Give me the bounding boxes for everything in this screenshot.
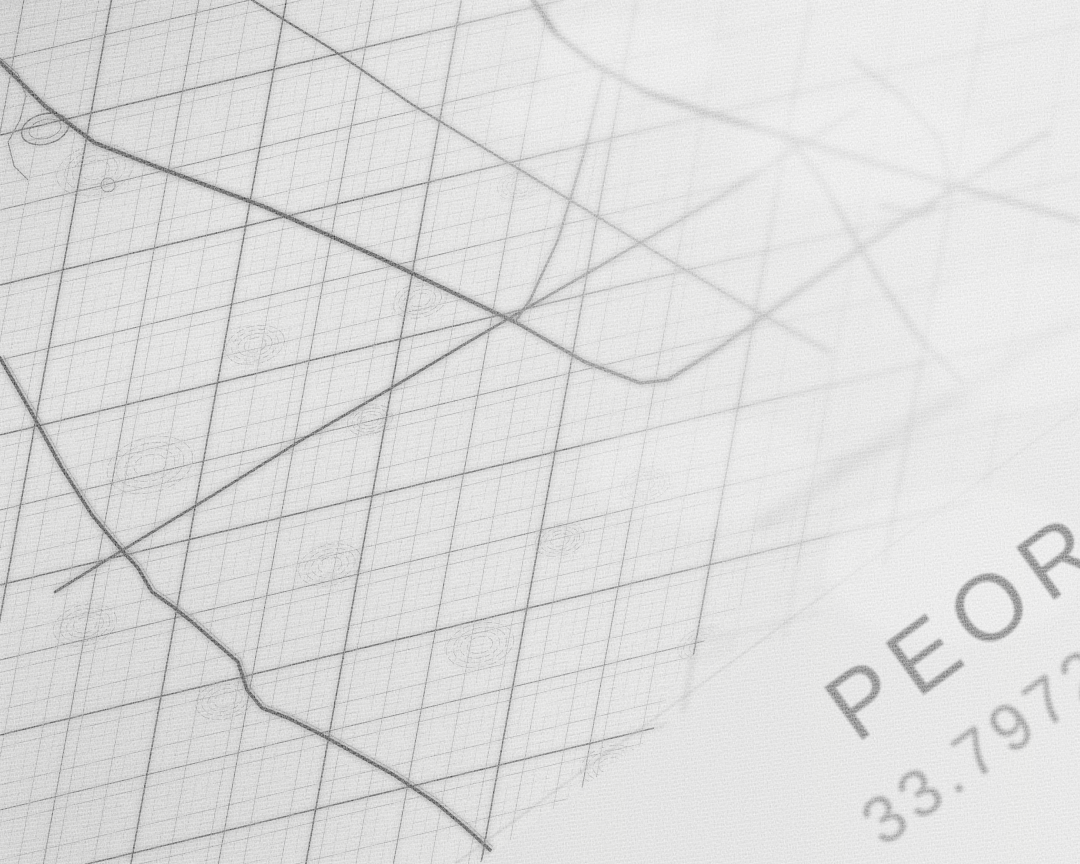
canvas-map-photo: PEORIA 33.7972 <box>0 0 1080 864</box>
canvas-grain-shadow <box>0 0 1080 864</box>
map-print-scene: PEORIA 33.7972 <box>0 0 1080 864</box>
